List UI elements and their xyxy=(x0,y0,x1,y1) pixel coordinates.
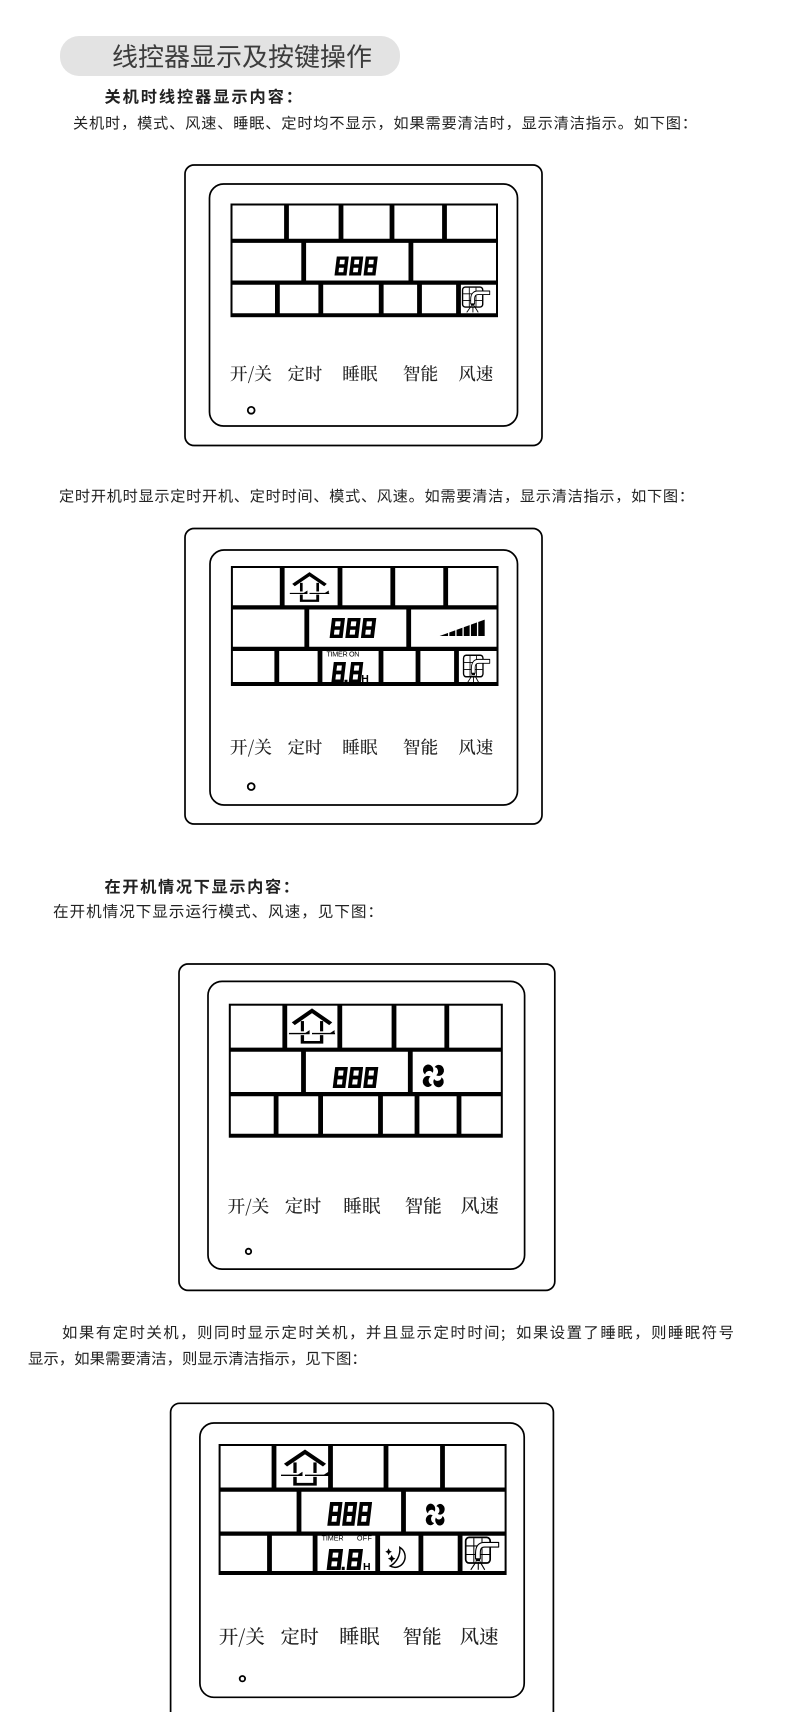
svg-text:OFF: OFF xyxy=(357,1534,373,1543)
svg-text:H: H xyxy=(363,1561,371,1573)
svg-text:TIMER: TIMER xyxy=(322,1534,344,1543)
svg-text:TIMER ON: TIMER ON xyxy=(327,650,360,659)
svg-text:H: H xyxy=(361,673,369,685)
